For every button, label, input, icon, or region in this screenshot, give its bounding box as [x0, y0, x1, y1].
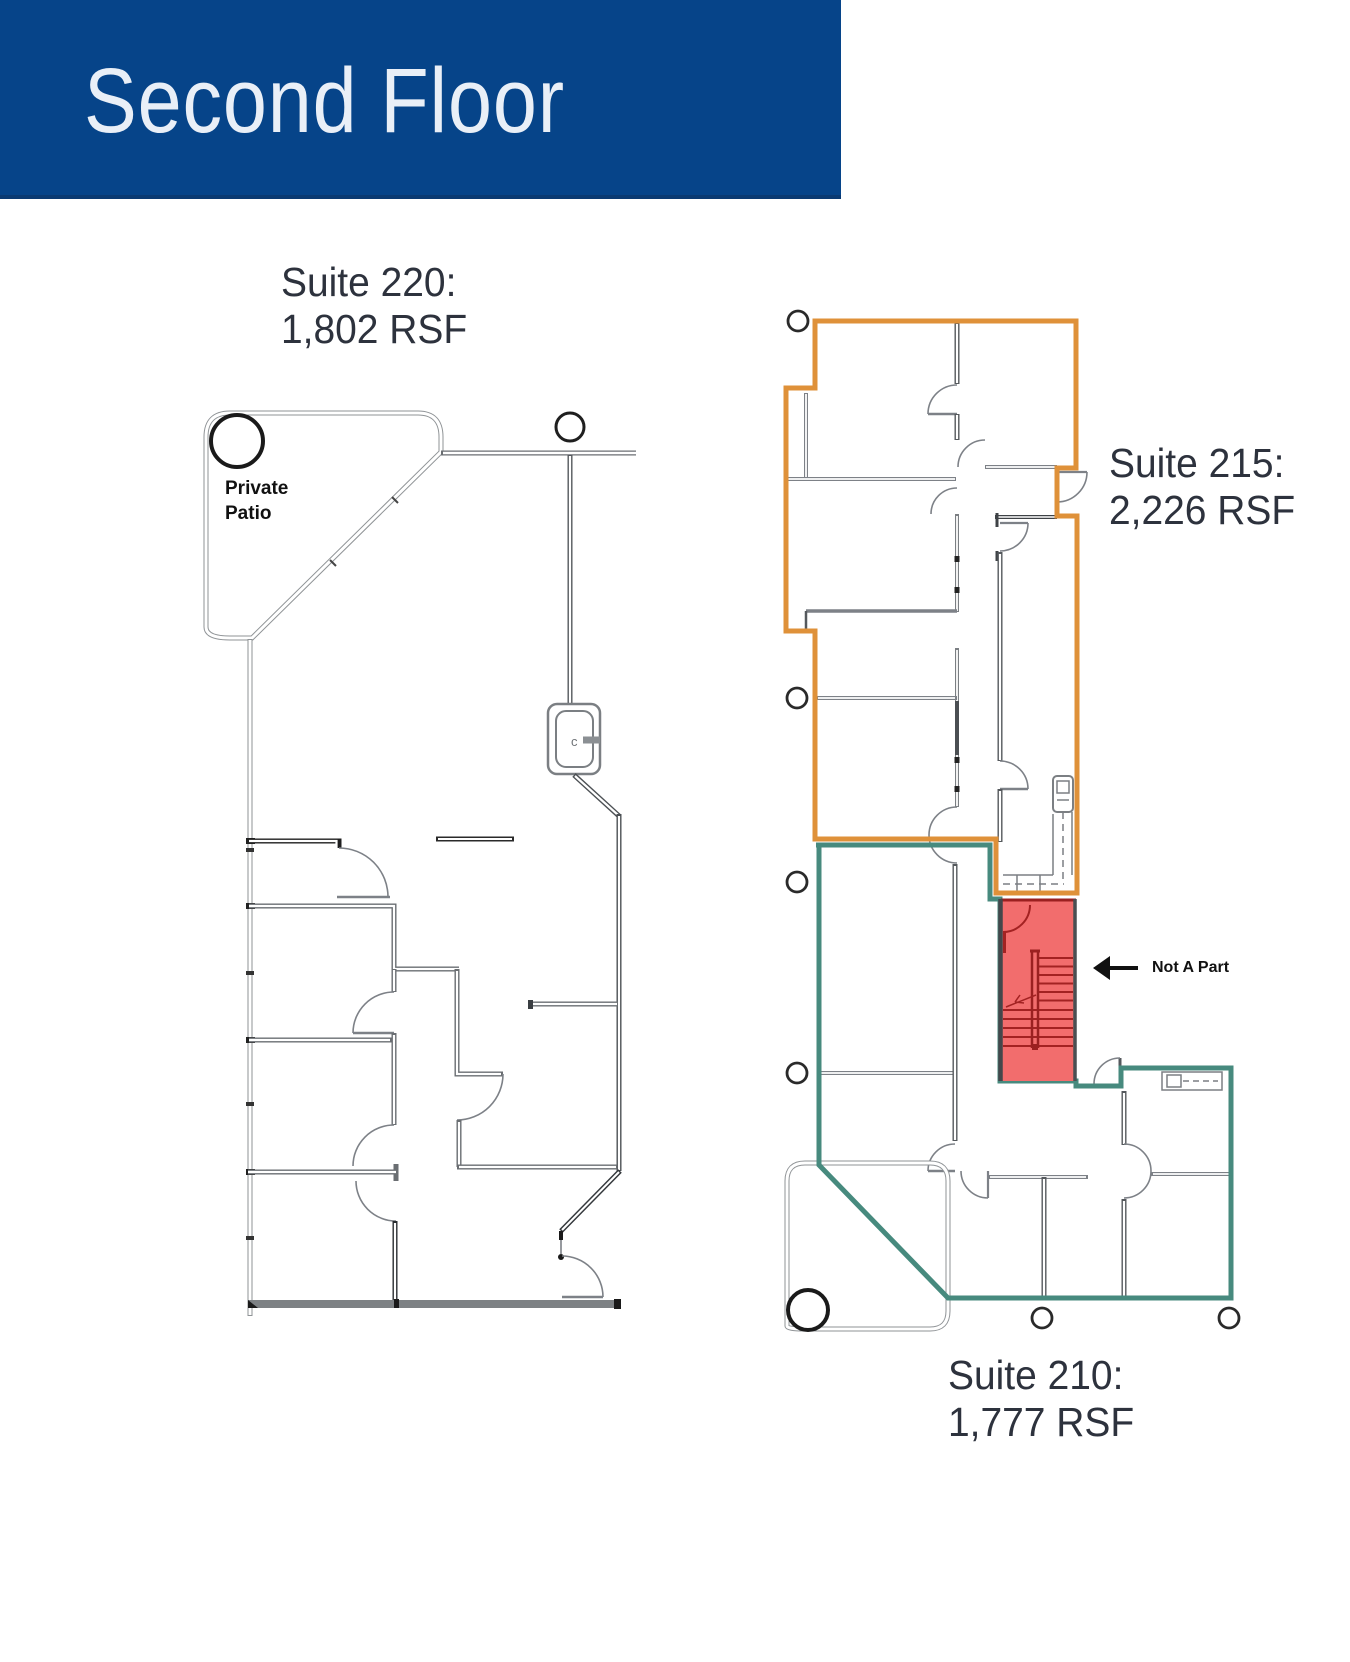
svg-text:c: c: [571, 734, 578, 749]
